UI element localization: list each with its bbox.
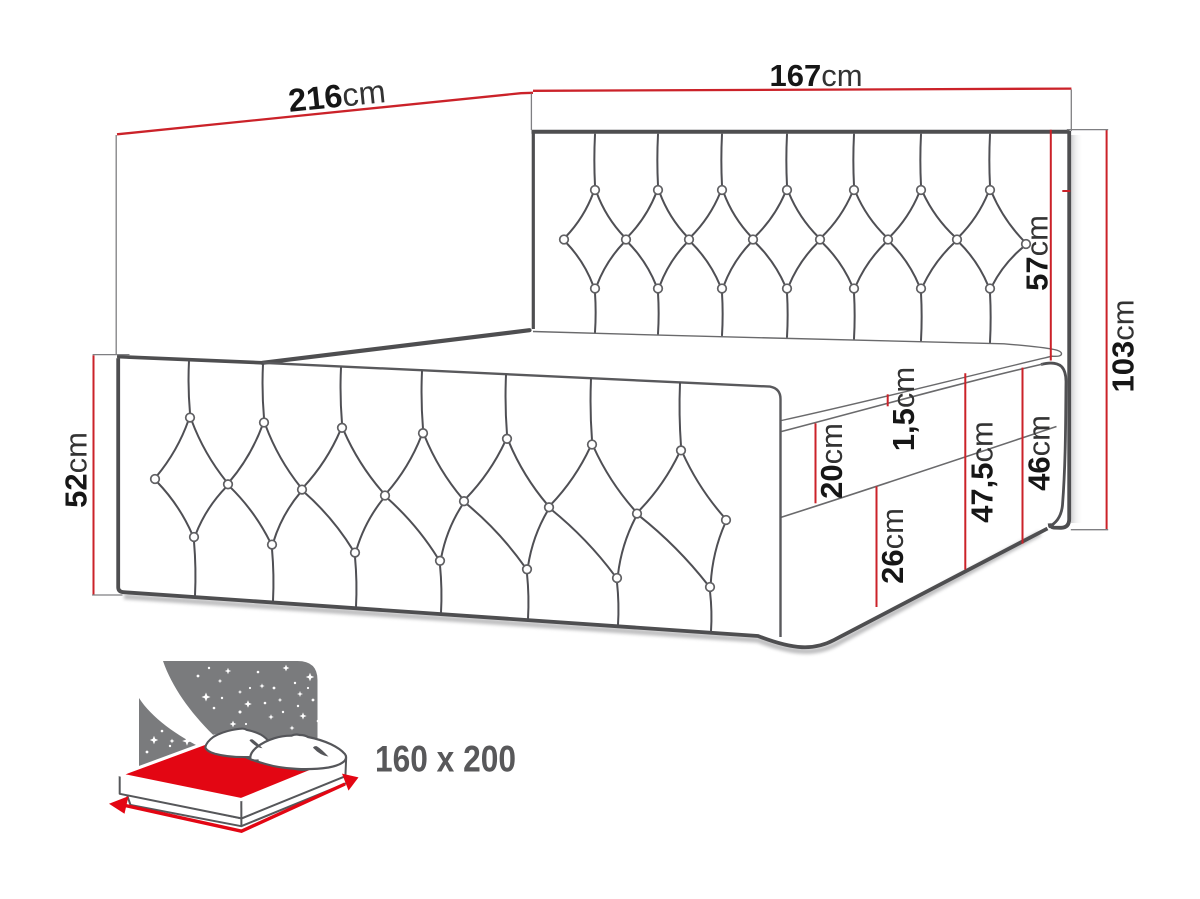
svg-text:57cm: 57cm [1019,215,1054,291]
svg-text:216cm: 216cm [287,73,388,119]
svg-text:103cm: 103cm [1106,299,1141,392]
svg-text:160 x 200: 160 x 200 [375,739,516,780]
svg-text:26cm: 26cm [875,508,910,584]
svg-text:167cm: 167cm [769,58,862,93]
svg-text:47,5cm: 47,5cm [965,421,1000,523]
svg-text:52cm: 52cm [59,432,94,508]
svg-text:20cm: 20cm [814,423,849,499]
svg-text:1,5cm: 1,5cm [886,367,921,451]
svg-text:46cm: 46cm [1022,415,1057,491]
